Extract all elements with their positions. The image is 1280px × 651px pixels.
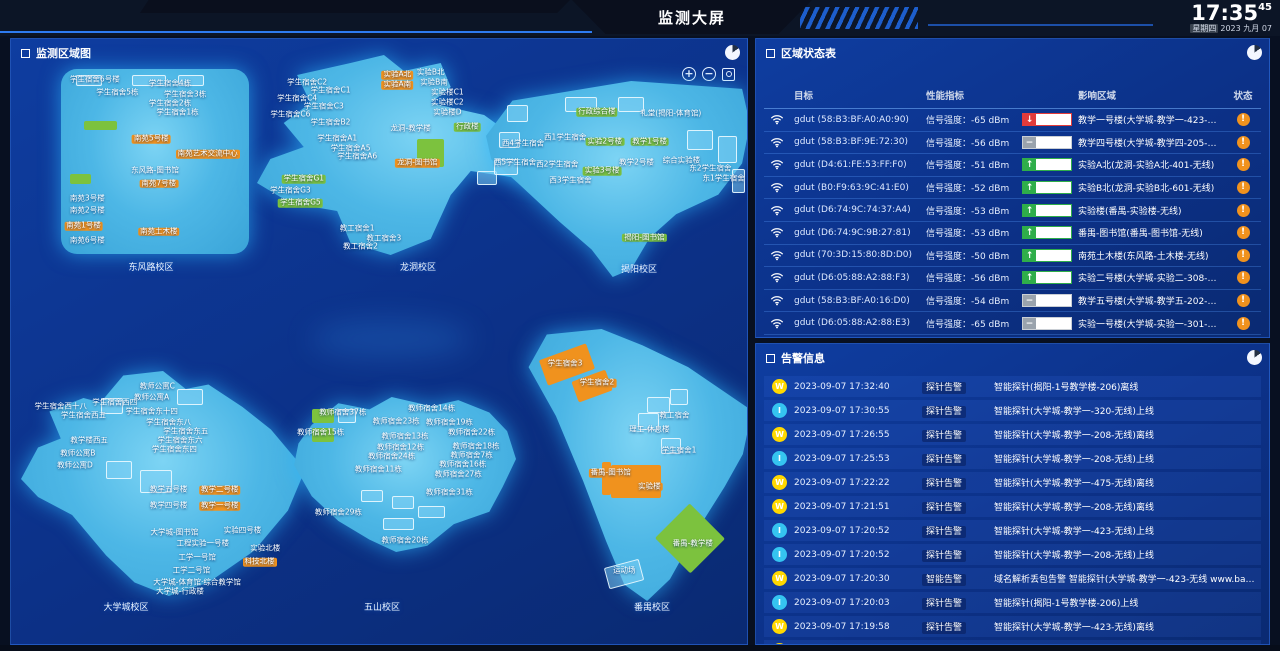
- trend-arrow-icon: ↑: [1023, 250, 1036, 261]
- building-label: 东2学生宿舍: [689, 165, 731, 174]
- building-label: 实验2号楼: [585, 137, 624, 146]
- trend-sparkline: [1036, 295, 1071, 306]
- alarm-level-icon: W: [772, 475, 787, 490]
- building-label: 教工宿舍1: [340, 225, 375, 234]
- building-label: 教学2号楼: [619, 159, 654, 168]
- wifi-icon: [764, 114, 790, 125]
- target-mac: gdut (D6:05:88:A2:88:E3): [790, 318, 926, 328]
- building-label: 教师宿舍15栋: [297, 428, 344, 437]
- building-label: 教师宿舍20栋: [381, 537, 428, 546]
- panel-gauge-icon[interactable]: [1247, 45, 1262, 60]
- building-label: 教学二号楼: [199, 486, 241, 495]
- building-label: 教师宿舍37栋: [319, 408, 366, 417]
- building-label: 教工宿舍2: [343, 243, 378, 252]
- building-label: 学生宿舍A1: [317, 135, 357, 144]
- target-mac: gdut (D6:05:88:A2:88:F3): [790, 273, 926, 283]
- metric-value: 信号强度：-52 dBm: [926, 181, 1022, 194]
- building-label: 南苑1号楼: [64, 222, 103, 231]
- affected-area: 实验二号楼(大学城-实验二-308-无线): [1078, 271, 1225, 284]
- alarm-row: I 2023-09-07 17:30:55 探针告警 智能探针(大学城-教学一-…: [764, 400, 1261, 421]
- status-table-header: 目标 性能指标 影响区域 状态: [764, 81, 1261, 109]
- building-label: 教学五号楼: [150, 486, 188, 495]
- col-metric: 性能指标: [926, 88, 1022, 102]
- alarm-info-panel: 告警信息 W 2023-09-07 17:32:40 探针告警 智能探针(揭阳-…: [755, 343, 1270, 645]
- building-label: 礼堂(揭阳-体育馆): [640, 110, 701, 119]
- building-label: 学生宿舍2: [578, 379, 617, 388]
- wifi-icon: [764, 159, 790, 170]
- target-mac: gdut (B0:F9:63:9C:41:E0): [790, 183, 926, 193]
- monitor-map-panel: 监测区域图 + − 学生宿舍6号楼学生宿舍4栋学生宿舍5栋学生宿舍3栋学生宿舍2…: [10, 38, 748, 645]
- building-label: 实验楼C1: [431, 89, 464, 98]
- alarm-level-icon: I: [772, 403, 787, 418]
- building-label: 学生宿舍G5: [278, 199, 323, 208]
- building-label: 西1学生宿舍: [544, 134, 586, 143]
- affected-area: 实验B北(龙洞-实验B北-601-无线): [1078, 181, 1225, 194]
- wifi-icon: [764, 182, 790, 193]
- building-label: 学生宿舍5栋: [96, 89, 138, 98]
- wifi-icon: [764, 318, 790, 329]
- building-label: 教师公寓A: [134, 394, 169, 403]
- trend-sparkline: [1036, 227, 1071, 238]
- panel-checkbox-icon[interactable]: [766, 354, 775, 363]
- building-label: 龙洞-图书馆: [395, 159, 439, 168]
- alarm-row: I 2023-09-07 17:20:52 探针告警 智能探针(大学城-教学一-…: [764, 520, 1261, 541]
- trend-arrow-icon: ↑: [1023, 182, 1036, 193]
- building-label: 理工-休息楼: [629, 425, 669, 434]
- building-label: 实验B北: [417, 69, 445, 78]
- building-label: 科技北楼: [243, 558, 277, 567]
- alarm-message: 智能探针(大学城-教学一-423-无线)离线: [994, 620, 1261, 633]
- alarm-time: 2023-09-07 17:26:55: [794, 430, 922, 440]
- alarm-time: 2023-09-07 17:25:53: [794, 454, 922, 464]
- col-area: 影响区域: [1078, 88, 1225, 102]
- alarm-time: 2023-09-07 17:20:30: [794, 574, 922, 584]
- building-label: 西5学生宿舍: [494, 159, 536, 168]
- affected-area: 教学一号楼(大学城-教学一-423-无线): [1078, 113, 1225, 126]
- alarm-type: 探针告警: [922, 596, 966, 609]
- building-rect: [383, 518, 414, 530]
- building-label: 大学城-图书馆: [151, 529, 199, 538]
- building-rect: [361, 490, 383, 502]
- col-target: 目标: [790, 88, 926, 102]
- building-label: 工学二号馆: [173, 567, 211, 576]
- building-label: 番禺-教学楼: [671, 540, 715, 549]
- building-label: 学生宿舍1栋: [156, 109, 198, 118]
- trend-arrow-icon: ↑: [1023, 205, 1036, 216]
- building-label: 西2学生宿舍: [536, 161, 578, 170]
- building-label: 教师公寓C: [140, 382, 175, 391]
- status-panel-title: 区域状态表: [781, 45, 836, 61]
- building-label: 教学一号楼: [199, 502, 241, 511]
- alarm-time: 2023-09-07 17:20:52: [794, 526, 922, 536]
- trend-sparkline: [1036, 205, 1071, 216]
- building-label: 实验北楼: [250, 544, 280, 553]
- clock-date: 2023 九月 07: [1220, 24, 1272, 33]
- campus-name-label: 番禺校区: [602, 600, 702, 613]
- alarm-row: I 2023-09-07 17:25:53 探针告警 智能探针(大学城-教学一-…: [764, 448, 1261, 469]
- affected-area: 番禺-图书馆(番禺-图书馆-无线): [1078, 226, 1225, 239]
- trend-arrow-icon: ↑: [1023, 272, 1036, 283]
- map-canvas: 学生宿舍6号楼学生宿舍4栋学生宿舍5栋学生宿舍3栋学生宿舍2栋学生宿舍1栋南苑5…: [11, 39, 747, 644]
- status-warning-icon: !: [1237, 317, 1250, 330]
- alarm-message: 智能探针(大学城-教学一-475-无线)离线: [994, 476, 1261, 489]
- building-label: 教学1号楼: [630, 137, 669, 146]
- status-warning-icon: !: [1237, 204, 1250, 217]
- alarm-message: 智能探针(大学城-教学一-208-无线)离线: [994, 500, 1261, 513]
- alarm-row: W 2023-09-07 17:32:40 探针告警 智能探针(揭阳-1号教学楼…: [764, 376, 1261, 397]
- trend-sparkline: [1036, 182, 1071, 193]
- building-label: 学生宿舍1: [662, 447, 697, 456]
- building-label: 行政楼: [454, 123, 481, 132]
- alarm-type: 探针告警: [922, 524, 966, 537]
- alarm-type: 探针告警: [922, 428, 966, 441]
- alarm-message: 智能探针(大学城-教学一-208-无线)上线: [994, 548, 1261, 561]
- page-title: 监测大屏: [658, 7, 726, 28]
- building-rect: [106, 461, 132, 479]
- building-label: 实验楼C2: [431, 99, 464, 108]
- building-label: 南苑3号楼: [70, 194, 105, 203]
- alarm-level-icon: I: [772, 523, 787, 538]
- campus-region-5[interactable]: 教师宿舍37栋教师宿舍14栋教师宿舍23栋教师宿舍19栋教师宿舍15栋教师宿舍2…: [294, 397, 516, 552]
- status-table-row: gdut (D6:74:9C:74:37:A4) 信号强度：-53 dBm ↑ …: [764, 199, 1261, 222]
- trend-badge: ↑: [1022, 204, 1072, 217]
- trend-sparkline: [1036, 318, 1071, 329]
- trend-badge: −: [1022, 136, 1072, 149]
- target-mac: gdut (70:3D:15:80:8D:D0): [790, 250, 926, 260]
- affected-area: 实验楼(番禺-实验楼-无线): [1078, 204, 1225, 217]
- building-label: 学生宿舍C6: [270, 111, 310, 120]
- campus-name-label: 五山校区: [332, 600, 432, 613]
- building-label: 教学四号楼: [150, 502, 188, 511]
- building-label: 教学楼西五: [70, 436, 108, 445]
- building-rect: [177, 389, 203, 405]
- building-label: 工程实验一号楼: [177, 540, 230, 549]
- area-status-panel: 区域状态表 目标 性能指标 影响区域 状态 gdut (58:B3:BF:A0:…: [755, 38, 1270, 338]
- trend-arrow-icon: −: [1023, 137, 1036, 148]
- building-label: 教工宿舍: [659, 412, 689, 421]
- trend-badge: ↑: [1022, 249, 1072, 262]
- building-label: 实验A北: [381, 71, 413, 80]
- building-label: 东风路-图书馆: [131, 166, 179, 175]
- target-mac: gdut (58:B3:BF:A0:A0:90): [790, 115, 926, 125]
- alarm-time: 2023-09-07 17:21:51: [794, 502, 922, 512]
- map-mist: [311, 319, 471, 359]
- building-rect: [418, 506, 445, 518]
- building-rect: [392, 496, 414, 508]
- building-label: 学生宿舍G1: [281, 175, 326, 184]
- affected-area: 教学四号楼(大学城-教学四-205-无线): [1078, 136, 1225, 149]
- status-warning-icon: !: [1237, 158, 1250, 171]
- col-status: 状态: [1225, 88, 1261, 102]
- status-warning-icon: !: [1237, 136, 1250, 149]
- building-label: 实验3号楼: [583, 167, 622, 176]
- alarm-time: 2023-09-07 17:20:03: [794, 598, 922, 608]
- building-rect: [84, 121, 118, 130]
- alarm-message: 智能探针(揭阳-1号教学楼-206)上线: [994, 596, 1261, 609]
- title-block: 监测大屏: [572, 0, 812, 34]
- alarm-type: 探针告警: [922, 500, 966, 513]
- alarm-row: W 2023-09-07 17:20:30 智能告警 域名解析丢包告警 智能探针…: [764, 568, 1261, 589]
- building-label: 学生宿舍东四: [152, 445, 197, 454]
- affected-area: 南苑土木楼(东风路-土木楼-无线): [1078, 249, 1225, 262]
- trend-arrow-icon: ↑: [1023, 159, 1036, 170]
- trend-badge: ↓: [1022, 113, 1072, 126]
- clock-time: 17:35: [1191, 1, 1258, 25]
- building-label: 实验A南: [381, 81, 413, 90]
- status-table-row: gdut (70:3D:15:80:8D:D0) 信号强度：-50 dBm ↑ …: [764, 245, 1261, 268]
- building-label: 南苑5号楼: [132, 135, 171, 144]
- building-label: 教师公寓B: [60, 450, 95, 459]
- campus-region-3[interactable]: 行政综合楼礼堂(揭阳-体育馆)西4学生宿舍西1学生宿舍实验2号楼教学1号楼西5学…: [486, 81, 747, 277]
- trend-arrow-icon: −: [1023, 295, 1036, 306]
- alarm-type: 探针告警: [922, 476, 966, 489]
- campus-region-4[interactable]: 教师公寓C教师公寓A学生宿舍西十八学生宿舍西四学生宿舍西五学生宿舍东十四学生宿舍…: [21, 371, 305, 596]
- affected-area: 教学五号楼(大学城-教学五-202-无线): [1078, 294, 1225, 307]
- trend-badge: ↑: [1022, 271, 1072, 284]
- wifi-icon: [764, 227, 790, 238]
- building-rect: [718, 136, 736, 163]
- alarm-type: 探针告警: [922, 452, 966, 465]
- target-mac: gdut (D6:74:9C:74:37:A4): [790, 205, 926, 215]
- building-label: 南苑7号楼: [139, 179, 178, 188]
- alarm-row: W 2023-09-07 17:21:51 探针告警 智能探针(大学城-教学一-…: [764, 496, 1261, 517]
- building-label: 学生宿舍西五: [61, 412, 106, 421]
- status-warning-icon: !: [1237, 271, 1250, 284]
- clock-weekday: 星期四: [1190, 24, 1218, 33]
- alarm-type: 探针告警: [922, 404, 966, 417]
- building-label: 教师宿舍11栋: [355, 466, 402, 475]
- building-rect: [687, 130, 713, 150]
- building-label: 教师宿舍24栋: [368, 453, 415, 462]
- metric-value: 信号强度：-56 dBm: [926, 271, 1022, 284]
- target-mac: gdut (D6:74:9C:9B:27:81): [790, 228, 926, 238]
- alarm-level-icon: I: [772, 547, 787, 562]
- alarm-level-icon: W: [772, 619, 787, 634]
- alarm-message: 智能探针(大学城-教学一-423-无线)上线: [994, 524, 1261, 537]
- wifi-icon: [764, 250, 790, 261]
- alarm-message: 智能探针(揭阳-1号教学楼-206)离线: [994, 380, 1261, 393]
- trend-badge: ↑: [1022, 158, 1072, 171]
- alarm-time: 2023-09-07 17:32:40: [794, 382, 922, 392]
- wifi-icon: [764, 295, 790, 306]
- panel-checkbox-icon[interactable]: [766, 49, 775, 58]
- alarm-list: W 2023-09-07 17:32:40 探针告警 智能探针(揭阳-1号教学楼…: [756, 372, 1269, 645]
- trend-sparkline: [1036, 272, 1071, 283]
- building-label: 学生宿舍6号楼: [70, 76, 120, 85]
- target-mac: gdut (D4:61:FE:53:FF:F0): [790, 160, 926, 170]
- building-label: 教师宿舍29栋: [315, 509, 362, 518]
- status-panel-title-row: 区域状态表: [756, 39, 1269, 67]
- top-header: 监测大屏 17:3545 星期四2023 九月 07: [0, 0, 1280, 36]
- building-label: 学生宿舍A6: [337, 153, 377, 162]
- alarm-level-icon: I: [772, 595, 787, 610]
- status-table-row: gdut (58:B3:BF:A0:16:D0) 信号强度：-54 dBm − …: [764, 290, 1261, 313]
- alarm-message: 域名解析丢包告警 智能探针(大学城-教学一-423-无线 www.baidu.c…: [994, 572, 1261, 585]
- clock: 17:3545 星期四2023 九月 07: [1190, 2, 1272, 33]
- status-warning-icon: !: [1237, 249, 1250, 262]
- campus-region-1[interactable]: 学生宿舍6号楼学生宿舍4栋学生宿舍5栋学生宿舍3栋学生宿舍2栋学生宿舍1栋南苑5…: [61, 69, 249, 254]
- building-label: 教师宿舍31栋: [426, 489, 473, 498]
- building-label: 学生宿舍4栋: [149, 79, 191, 88]
- wifi-icon: [764, 205, 790, 216]
- building-label: 实验楼: [636, 482, 663, 491]
- alarm-message: 智能探针(大学城-教学一-208-无线)离线: [994, 428, 1261, 441]
- alarm-time: 2023-09-07 17:30:55: [794, 406, 922, 416]
- alarm-type: 智能告警: [922, 572, 966, 585]
- alarm-row: W 2023-09-07 17:26:55 探针告警 智能探针(大学城-教学一-…: [764, 424, 1261, 445]
- trend-badge: ↑: [1022, 226, 1072, 239]
- trend-sparkline: [1036, 250, 1071, 261]
- building-label: 实验B南: [420, 79, 448, 88]
- status-table-row: gdut (D6:05:88:A2:88:F3) 信号强度：-56 dBm ↑ …: [764, 267, 1261, 290]
- header-underline: [0, 31, 592, 33]
- header-hatch-stripes: [800, 7, 918, 29]
- affected-area: 实验一号楼(大学城-实验一-301-无线): [1078, 317, 1225, 330]
- status-warning-icon: !: [1237, 226, 1250, 239]
- alarm-type: 探针告警: [922, 380, 966, 393]
- metric-value: 信号强度：-65 dBm: [926, 113, 1022, 126]
- status-table-row: gdut (D6:05:88:A2:88:E3) 信号强度：-65 dBm − …: [764, 312, 1261, 335]
- trend-badge: −: [1022, 294, 1072, 307]
- alarm-level-icon: W: [772, 499, 787, 514]
- alarm-time: 2023-09-07 17:22:22: [794, 478, 922, 488]
- building-label: 南苑6号楼: [70, 237, 105, 246]
- trend-arrow-icon: ↑: [1023, 227, 1036, 238]
- trend-sparkline: [1036, 137, 1071, 148]
- status-table-row: gdut (D6:74:9C:9B:27:81) 信号强度：-53 dBm ↑ …: [764, 222, 1261, 245]
- status-table-body: gdut (58:B3:BF:A0:A0:90) 信号强度：-65 dBm ↓ …: [764, 109, 1261, 335]
- building-label: 教师宿舍27栋: [435, 470, 482, 479]
- building-label: 学生宿舍G3: [270, 187, 311, 196]
- trend-sparkline: [1036, 159, 1071, 170]
- metric-value: 信号强度：-50 dBm: [926, 249, 1022, 262]
- clock-seconds: 45: [1258, 2, 1272, 13]
- alarm-level-icon: W: [772, 379, 787, 394]
- target-mac: gdut (58:B3:BF:A0:16:D0): [790, 296, 926, 306]
- trend-badge: −: [1022, 317, 1072, 330]
- campus-name-label: 龙洞校区: [368, 260, 468, 273]
- alarm-row: W 2023-09-07 17:19:58 探针告警 智能探针(大学城-教学一-…: [764, 616, 1261, 637]
- building-label: 学生宿舍3: [546, 360, 585, 369]
- building-label: 教师宿舍23栋: [373, 417, 420, 426]
- metric-value: 信号强度：-53 dBm: [926, 226, 1022, 239]
- building-label: 南苑2号楼: [70, 207, 105, 216]
- building-label: 行政综合楼: [576, 108, 618, 117]
- metric-value: 信号强度：-56 dBm: [926, 136, 1022, 149]
- status-warning-icon: !: [1237, 113, 1250, 126]
- header-decoration-right: [928, 24, 1153, 26]
- building-rect: [670, 389, 688, 405]
- wifi-icon: [764, 272, 790, 283]
- building-label: 学生宿舍东十四: [125, 407, 178, 416]
- building-label: 教师宿舍13栋: [381, 433, 428, 442]
- status-table-row: gdut (D4:61:FE:53:FF:F0) 信号强度：-51 dBm ↑ …: [764, 154, 1261, 177]
- status-table-row: gdut (B0:F9:63:9C:41:E0) 信号强度：-52 dBm ↑ …: [764, 177, 1261, 200]
- building-label: 西4学生宿舍: [502, 139, 544, 148]
- alarm-level-icon: W: [772, 571, 787, 586]
- building-label: 实验四号楼: [224, 526, 262, 535]
- affected-area: 实验A北(龙洞-实验A北-401-无线): [1078, 158, 1225, 171]
- campus-name-label: 东风路校区: [101, 260, 201, 273]
- alarm-time: 2023-09-07 17:19:58: [794, 622, 922, 632]
- building-rect: [70, 174, 91, 183]
- alarm-level-icon: W: [772, 427, 787, 442]
- building-label: 揭阳-图书馆: [622, 233, 666, 242]
- bottom-strip: [0, 645, 1280, 651]
- campus-region-6[interactable]: 学生宿舍3学生宿舍2教工宿舍理工-休息楼学生宿舍1番禺-图书馆实验楼番禺-教学楼…: [524, 329, 747, 601]
- building-label: 南苑艺术交流中心: [176, 150, 240, 159]
- metric-value: 信号强度：-53 dBm: [926, 204, 1022, 217]
- building-label: 工学一号馆: [178, 553, 216, 562]
- status-table-row: gdut (58:B3:BF:9E:72:30) 信号强度：-56 dBm − …: [764, 132, 1261, 155]
- building-label: 大学城-行政楼: [156, 587, 204, 596]
- alarm-message: 智能探针(大学城-教学一-208-无线)上线: [994, 452, 1261, 465]
- trend-arrow-icon: −: [1023, 318, 1036, 329]
- alarm-row: I 2023-09-07 17:20:52 探针告警 智能探针(大学城-教学一-…: [764, 544, 1261, 565]
- target-mac: gdut (58:B3:BF:9E:72:30): [790, 137, 926, 147]
- building-label: 南苑土木楼: [138, 227, 180, 236]
- wifi-icon: [764, 137, 790, 148]
- alarm-type: 探针告警: [922, 620, 966, 633]
- alarm-message: 智能探针(大学城-教学一-320-无线)上线: [994, 404, 1261, 417]
- building-label: 学生宿舍B2: [311, 119, 351, 128]
- campus-name-label: 大学城校区: [76, 600, 176, 613]
- status-table: 目标 性能指标 影响区域 状态 gdut (58:B3:BF:A0:A0:90)…: [756, 81, 1269, 335]
- building-label: 东1学生宿舍: [702, 175, 744, 184]
- metric-value: 信号强度：-51 dBm: [926, 158, 1022, 171]
- building-label: 教师宿舍14栋: [408, 405, 455, 414]
- building-label: 实验楼D: [433, 109, 461, 118]
- building-label: 教师公寓D: [57, 461, 93, 470]
- building-label: 番禺-图书馆: [589, 469, 633, 478]
- campus-name-label: 揭阳校区: [589, 262, 689, 275]
- header-decoration-left: [140, 0, 570, 13]
- alarm-panel-title-row: 告警信息: [756, 344, 1269, 372]
- building-label: 西3学生宿舍: [549, 177, 591, 186]
- status-table-row: gdut (58:B3:BF:A0:A0:90) 信号强度：-65 dBm ↓ …: [764, 109, 1261, 132]
- alarm-level-icon: I: [772, 451, 787, 466]
- alarm-type: 探针告警: [922, 548, 966, 561]
- status-warning-icon: !: [1237, 181, 1250, 194]
- alarm-panel-title: 告警信息: [781, 350, 825, 366]
- building-rect: [507, 105, 528, 123]
- building-label: 运动场: [613, 567, 636, 576]
- building-label: 教师宿舍22栋: [448, 428, 495, 437]
- alarm-row: I 2023-09-07 17:20:03 探针告警 智能探针(揭阳-1号教学楼…: [764, 592, 1261, 613]
- status-warning-icon: !: [1237, 294, 1250, 307]
- panel-gauge-icon[interactable]: [1247, 350, 1262, 365]
- building-label: 龙洞-教学楼: [391, 125, 431, 134]
- metric-value: 信号强度：-54 dBm: [926, 294, 1022, 307]
- metric-value: 信号强度：-65 dBm: [926, 317, 1022, 330]
- trend-badge: ↑: [1022, 181, 1072, 194]
- alarm-row: W 2023-09-07 17:22:22 探针告警 智能探针(大学城-教学一-…: [764, 472, 1261, 493]
- alarm-time: 2023-09-07 17:20:52: [794, 550, 922, 560]
- trend-sparkline: [1036, 114, 1071, 125]
- trend-arrow-icon: ↓: [1023, 114, 1036, 125]
